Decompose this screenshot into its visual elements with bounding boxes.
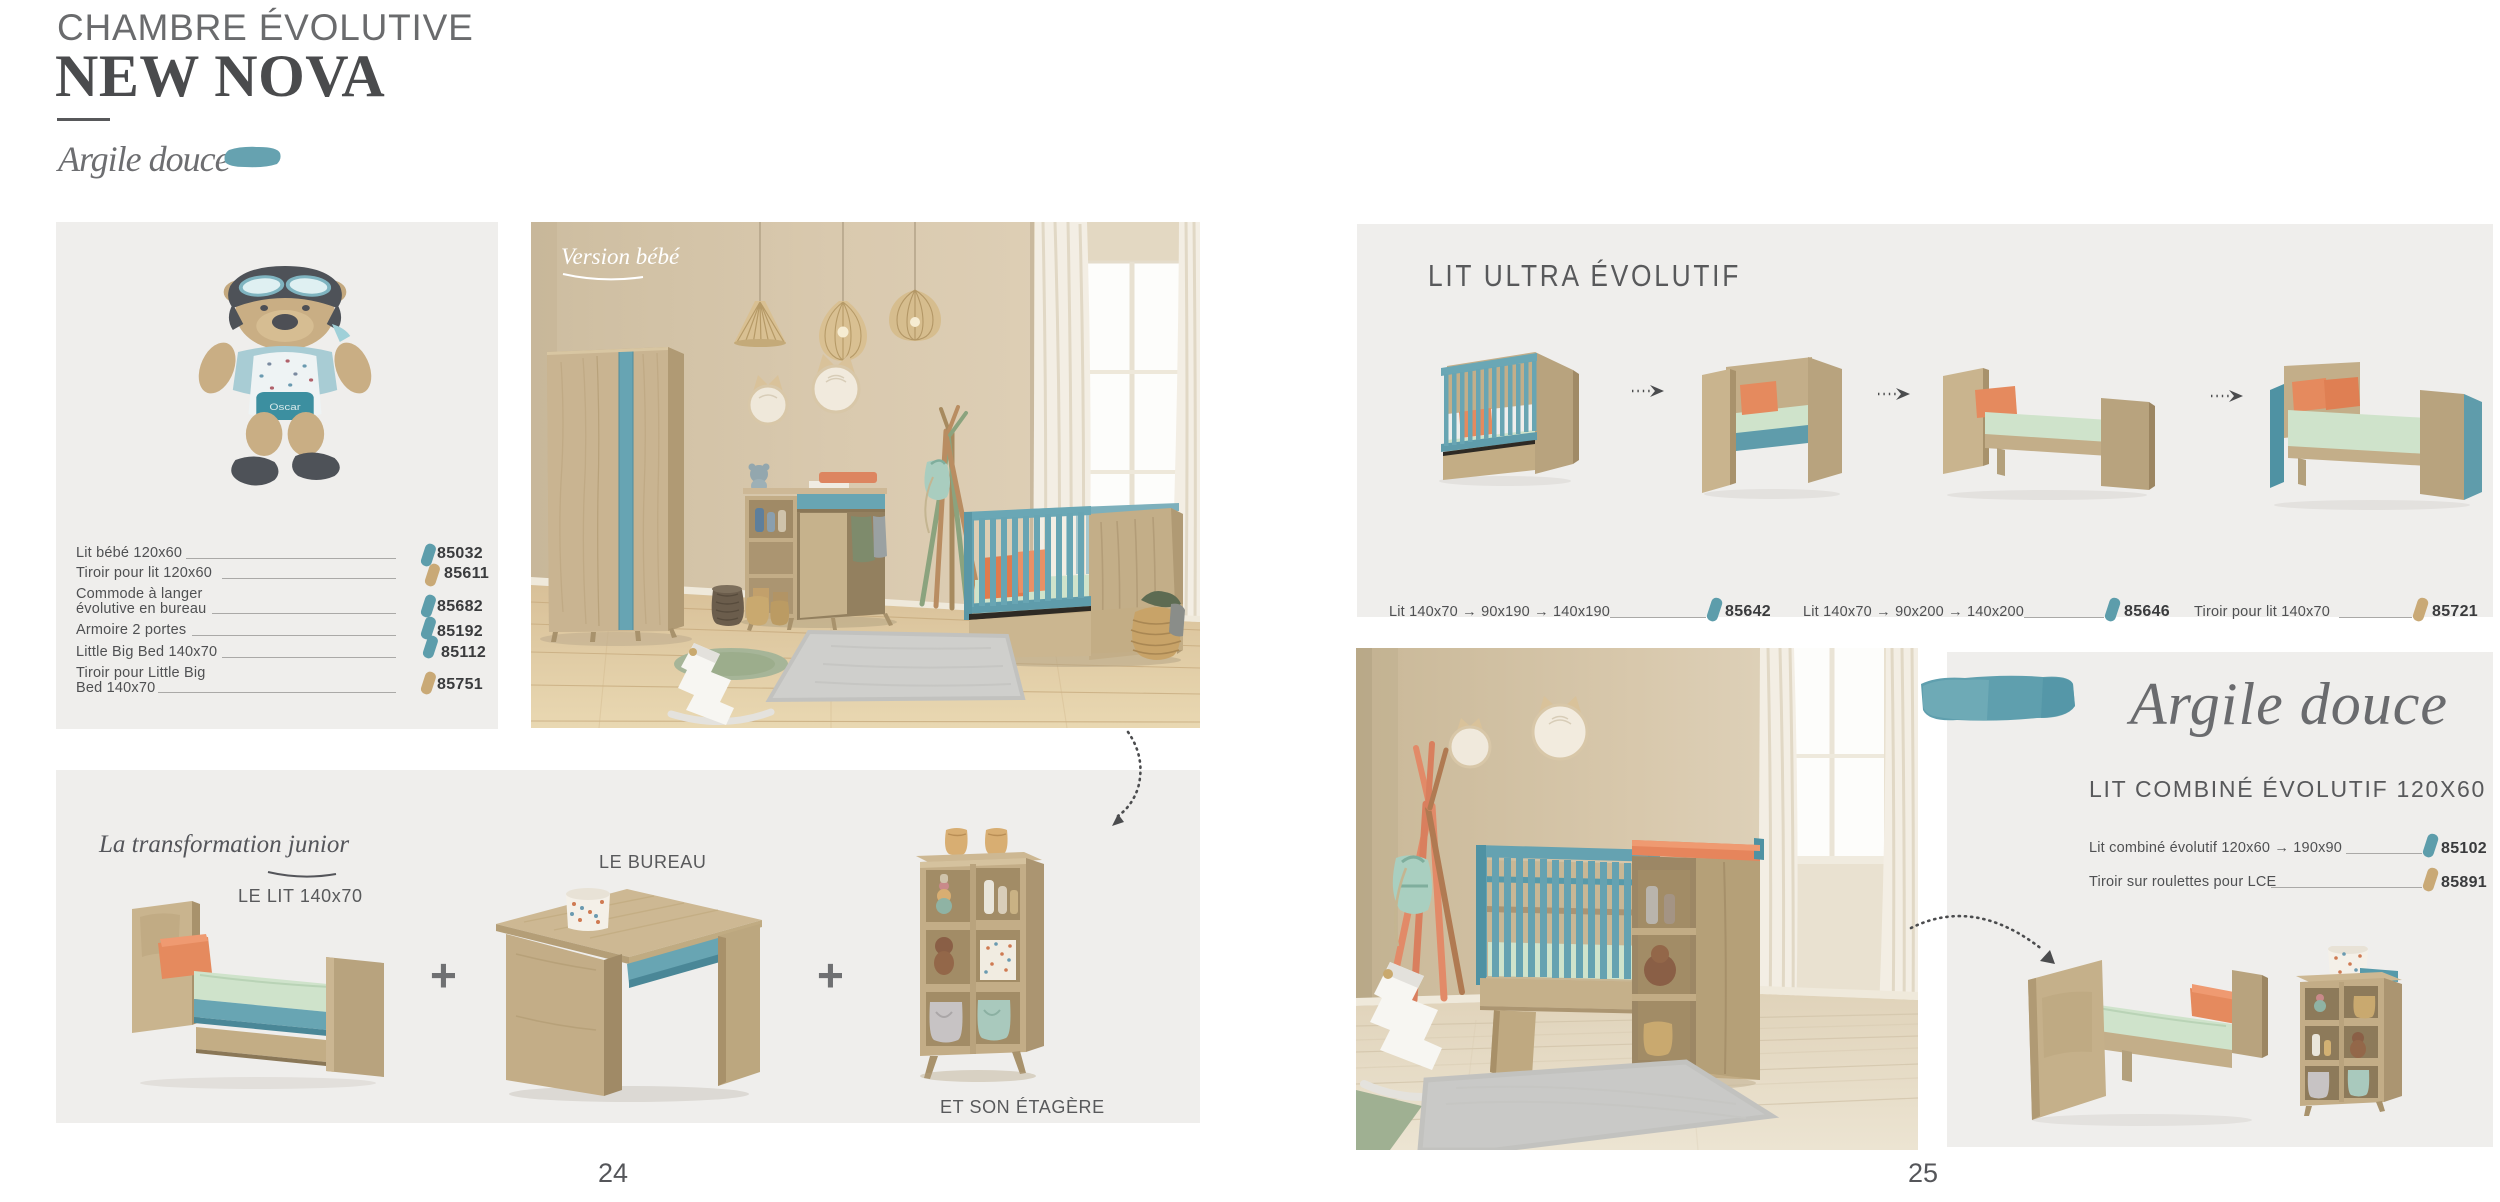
svg-text:Version bébé: Version bébé [561,244,681,269]
svg-text:Oscar: Oscar [269,403,301,412]
